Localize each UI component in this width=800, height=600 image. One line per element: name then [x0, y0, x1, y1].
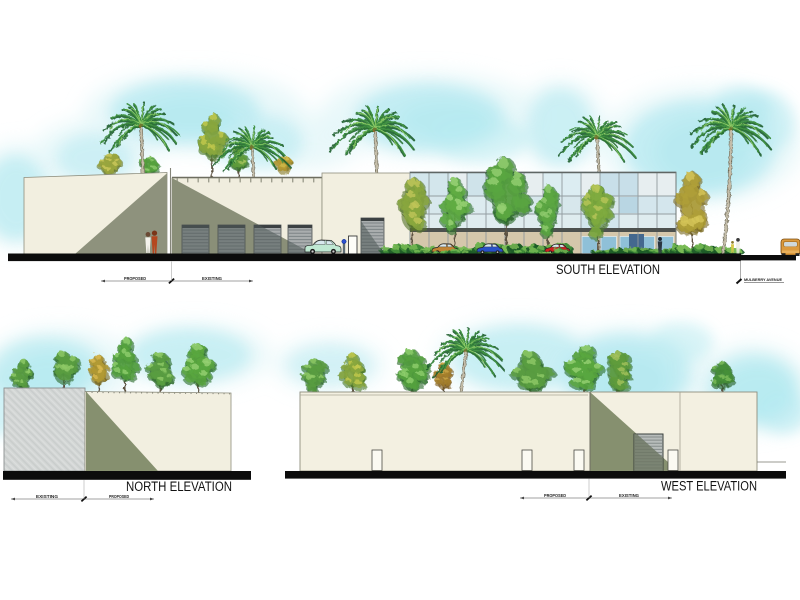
svg-text:PROPOSED: PROPOSED: [544, 493, 567, 498]
svg-text:MULBERRY AVENUE: MULBERRY AVENUE: [744, 277, 782, 282]
svg-text:EXISTING: EXISTING: [619, 493, 639, 498]
svg-text:EXISTING: EXISTING: [36, 494, 59, 499]
svg-text:PROPOSED: PROPOSED: [109, 494, 130, 499]
svg-text:EXISTING: EXISTING: [202, 276, 222, 281]
svg-text:NORTH ELEVATION: NORTH ELEVATION: [126, 479, 232, 494]
svg-text:SOUTH ELEVATION: SOUTH ELEVATION: [556, 262, 660, 277]
svg-text:WEST ELEVATION: WEST ELEVATION: [661, 479, 757, 494]
svg-text:PROPOSED: PROPOSED: [124, 276, 147, 281]
